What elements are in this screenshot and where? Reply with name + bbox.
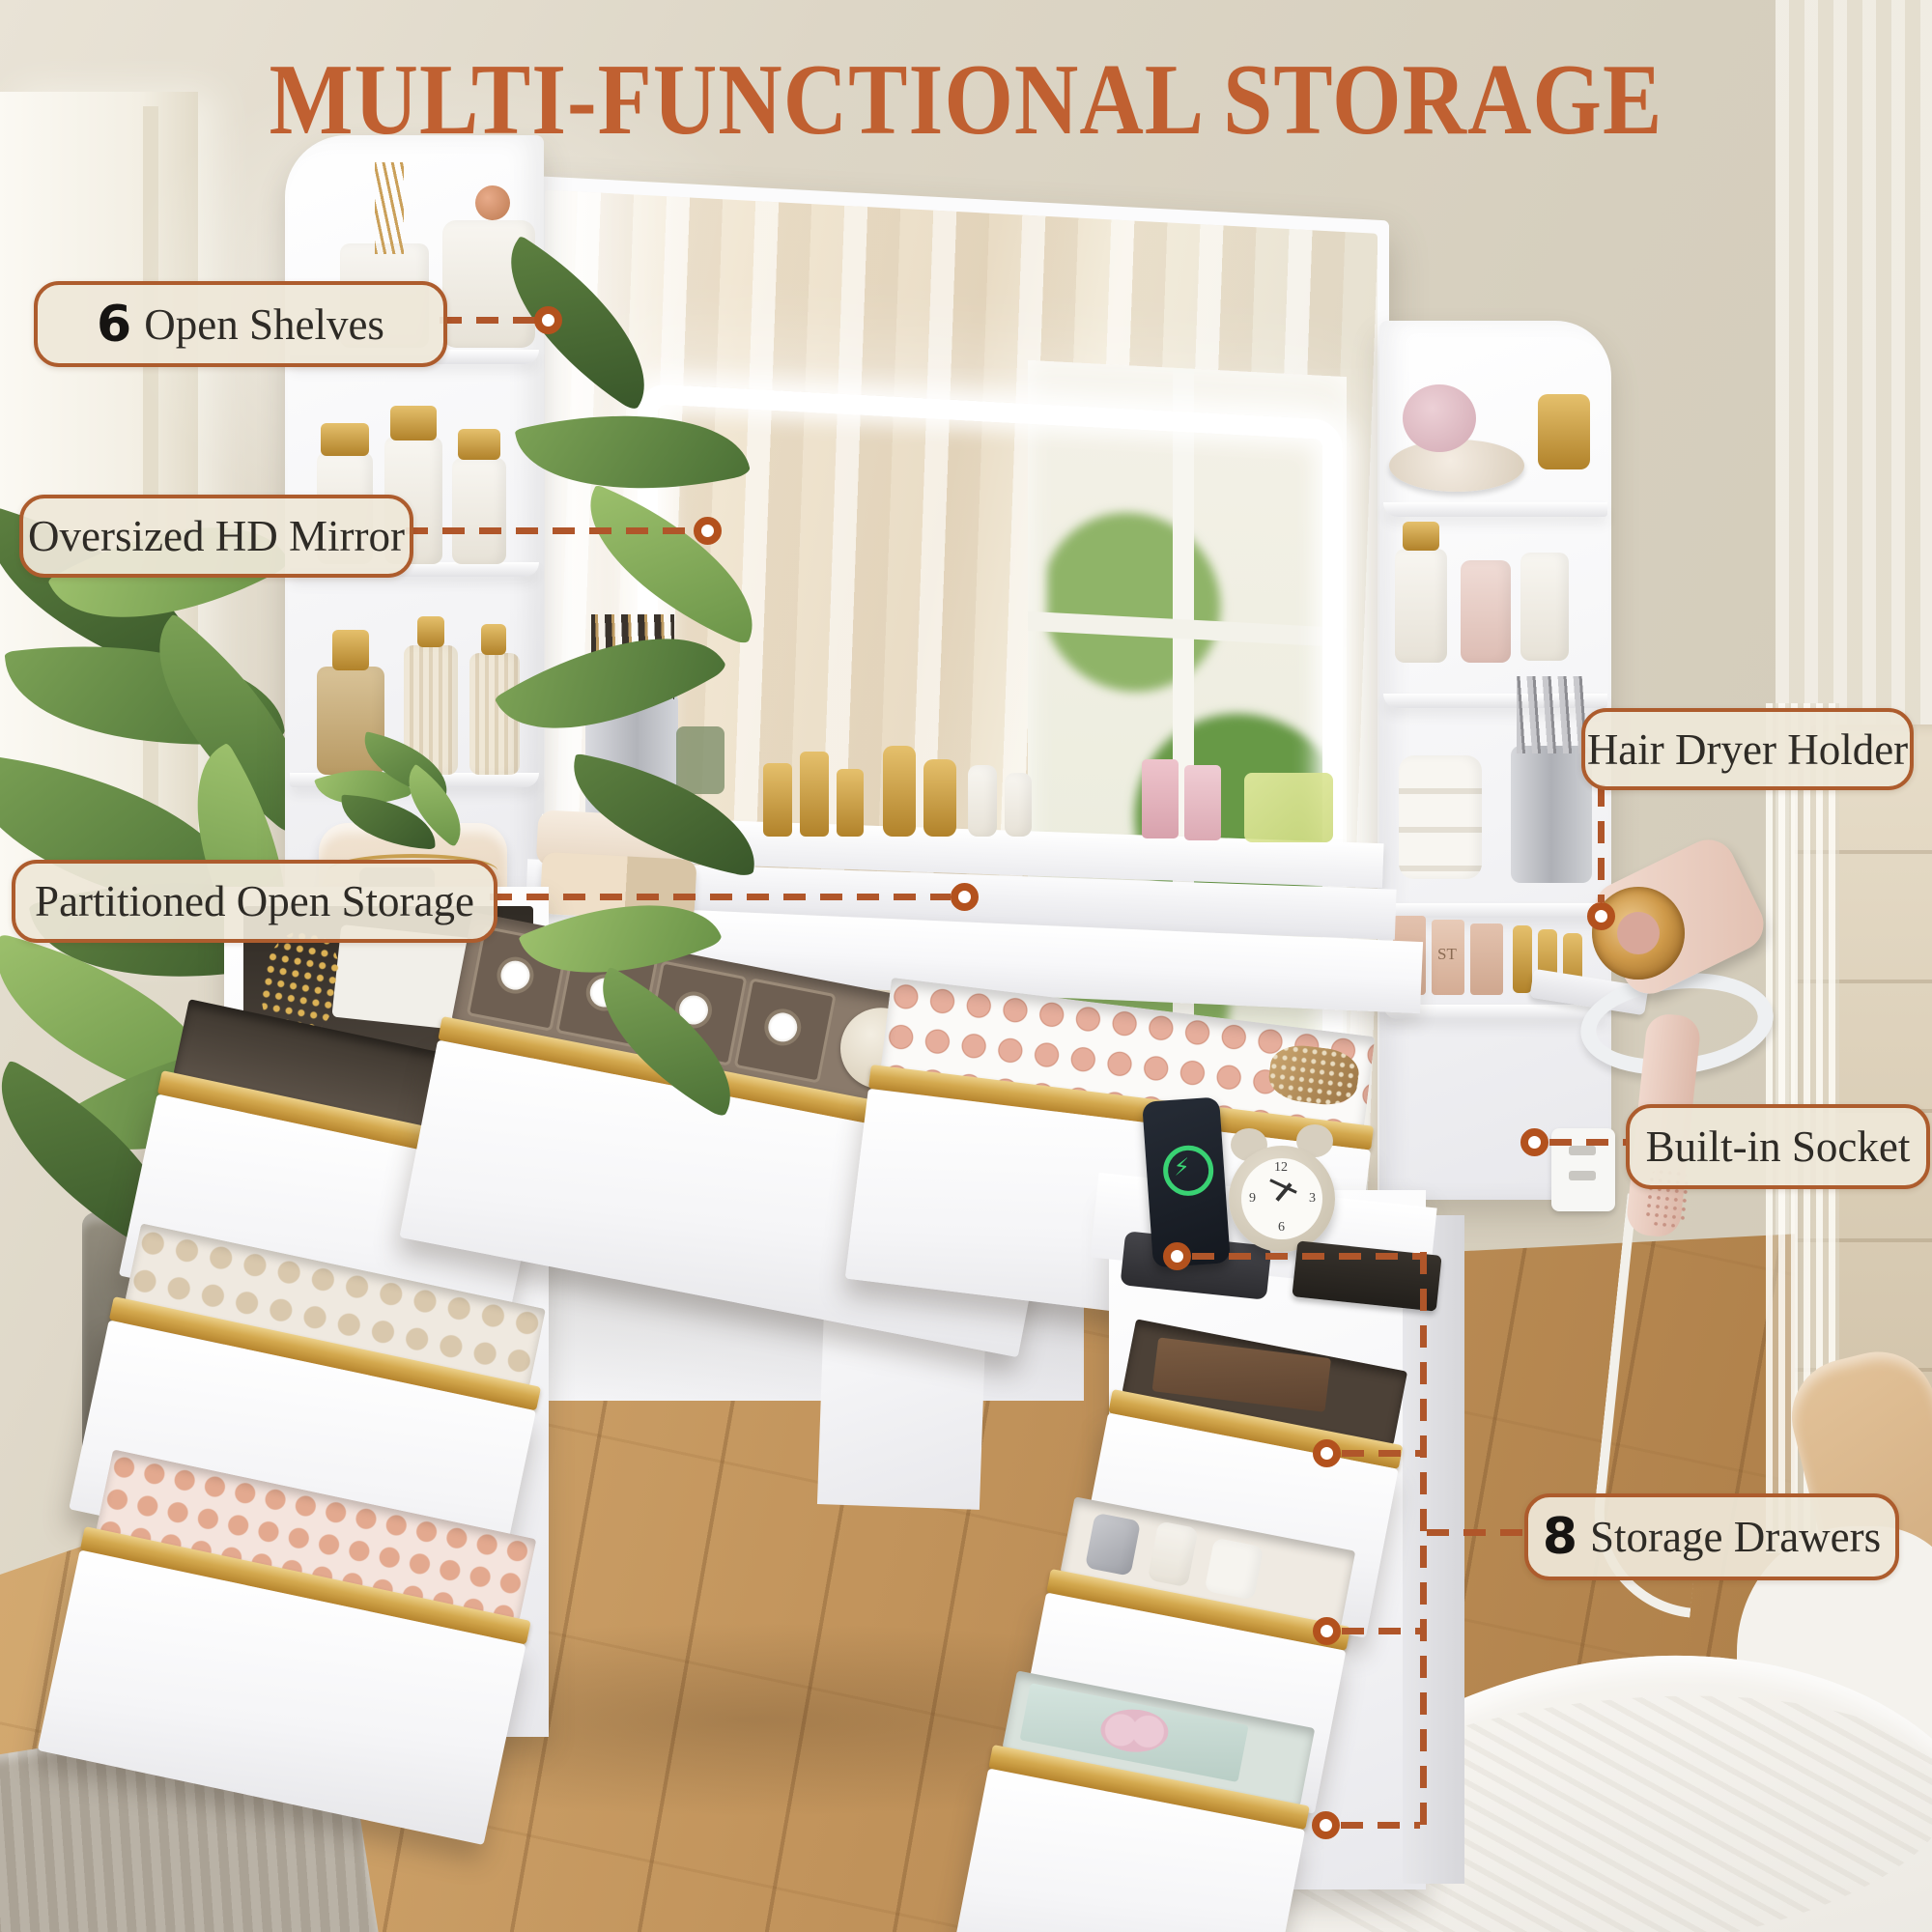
callout-socket: Built-in Socket — [1626, 1104, 1930, 1189]
lotion-bottle — [1520, 553, 1569, 661]
marker-open-storage — [951, 883, 979, 911]
connector-drawers-vertical — [1420, 1252, 1427, 1825]
drawer-left-3 — [85, 1526, 531, 1621]
callout-text: Oversized HD Mirror — [28, 511, 405, 561]
marker-drawer-right-2 — [1313, 1617, 1341, 1645]
drawer-right-2 — [1051, 1569, 1350, 1627]
connector-drawer-center — [1192, 1253, 1420, 1260]
callout-storage-drawers: 8 Storage Drawers — [1524, 1493, 1899, 1580]
callout-hd-mirror: Oversized HD Mirror — [19, 495, 413, 578]
lotion-bottle — [1395, 549, 1447, 663]
white-jar-stack — [1399, 755, 1482, 879]
clock-numeral: 9 — [1249, 1191, 1256, 1207]
marker-socket — [1520, 1128, 1548, 1156]
perfume-bottle-grey — [1085, 1513, 1141, 1577]
green-glass-box — [1244, 773, 1333, 842]
callout-number: 8 — [1543, 1508, 1577, 1566]
lotion-bottle-pink — [1461, 560, 1511, 663]
pink-box — [1142, 759, 1179, 838]
pump-bottle-cap — [321, 423, 369, 456]
marker-drawer-right-1 — [1313, 1439, 1341, 1467]
clock-numeral: 3 — [1309, 1191, 1316, 1207]
brush-cup-silver — [1511, 746, 1592, 883]
smartphone: ⚡ — [1142, 1096, 1231, 1267]
powder-puff — [1403, 384, 1476, 452]
gold-spray — [800, 752, 829, 837]
dropper-cap — [332, 630, 369, 670]
serum-bottle — [1005, 773, 1032, 837]
marker-open-shelves — [534, 306, 562, 334]
pump-bottle — [452, 458, 506, 564]
drawer-center-2 — [871, 1065, 1374, 1126]
connector-drawer-right-1 — [1342, 1450, 1420, 1457]
serum-bottle — [968, 765, 997, 837]
perfume-bottle-clear — [1148, 1520, 1199, 1587]
connector-drawer-right-2 — [1342, 1628, 1420, 1634]
gold-spray — [837, 769, 864, 837]
callout-text: Hair Dryer Holder — [1587, 724, 1908, 775]
callout-hair-dryer: Hair Dryer Holder — [1581, 708, 1914, 790]
gold-bottle — [883, 746, 916, 837]
connector-open-shelves — [440, 317, 536, 324]
gold-lip-tube — [1513, 925, 1532, 993]
callout-text: Built-in Socket — [1646, 1122, 1911, 1172]
brush-handles — [1517, 676, 1586, 753]
lipstick-brand-label: ST — [1437, 945, 1457, 964]
pink-box — [1184, 765, 1221, 840]
connector-drawers-label — [1427, 1529, 1524, 1536]
shelf-board — [1383, 502, 1607, 517]
callout-number: 6 — [97, 296, 131, 354]
lipstick-box — [1470, 923, 1503, 995]
callout-open-storage: Partitioned Open Storage — [12, 860, 497, 943]
perfume-bottle-white — [1205, 1538, 1264, 1601]
page-title: MULTI-FUNCTIONAL STORAGE — [0, 41, 1932, 157]
outlet-slot — [1569, 1146, 1596, 1155]
charging-icon: ⚡ — [1173, 1153, 1191, 1181]
perfume-gold — [1538, 394, 1590, 469]
connector-drawer-right-3 — [1341, 1822, 1420, 1829]
marker-drawer-center — [1163, 1242, 1191, 1270]
connector-hd-mirror — [406, 527, 694, 534]
clock-face: 12 3 6 9 — [1241, 1158, 1322, 1239]
marker-hair-dryer — [1587, 902, 1615, 930]
lotion-cap — [1403, 522, 1439, 551]
gold-bottle — [923, 759, 956, 837]
crystal-bottle-cap — [417, 616, 444, 647]
diffuser-reeds — [375, 162, 404, 254]
outlet-slot — [1569, 1171, 1596, 1180]
callout-open-shelves: 6 Open Shelves — [34, 281, 447, 367]
drawer-right-1 — [1113, 1389, 1403, 1445]
pump-bottle-cap — [458, 429, 500, 460]
drawer-right-3 — [993, 1745, 1310, 1806]
perfume-cap — [475, 185, 510, 220]
small-green-cup — [676, 726, 724, 794]
right-pedestal-side — [1403, 1215, 1464, 1884]
drawer-left-2 — [114, 1296, 541, 1387]
pump-bottle-cap — [390, 406, 437, 440]
gold-spray — [763, 763, 792, 837]
callout-text: Storage Drawers — [1590, 1512, 1881, 1562]
clock-numeral: 12 — [1274, 1160, 1288, 1176]
marker-hd-mirror — [694, 517, 722, 545]
product-infographic: ST ST — [0, 0, 1932, 1932]
crystal-bottle-cap — [481, 624, 506, 655]
hair-brush — [1266, 1042, 1361, 1109]
clock-numeral: 6 — [1278, 1220, 1285, 1236]
hair-dryer-face-center — [1617, 912, 1660, 954]
connector-open-storage — [490, 894, 951, 900]
callout-text: Partitioned Open Storage — [35, 876, 474, 926]
marker-drawer-right-3 — [1312, 1811, 1340, 1839]
connector-hair-dryer — [1598, 784, 1605, 902]
callout-text: Open Shelves — [144, 299, 384, 350]
connector-socket — [1549, 1139, 1626, 1146]
